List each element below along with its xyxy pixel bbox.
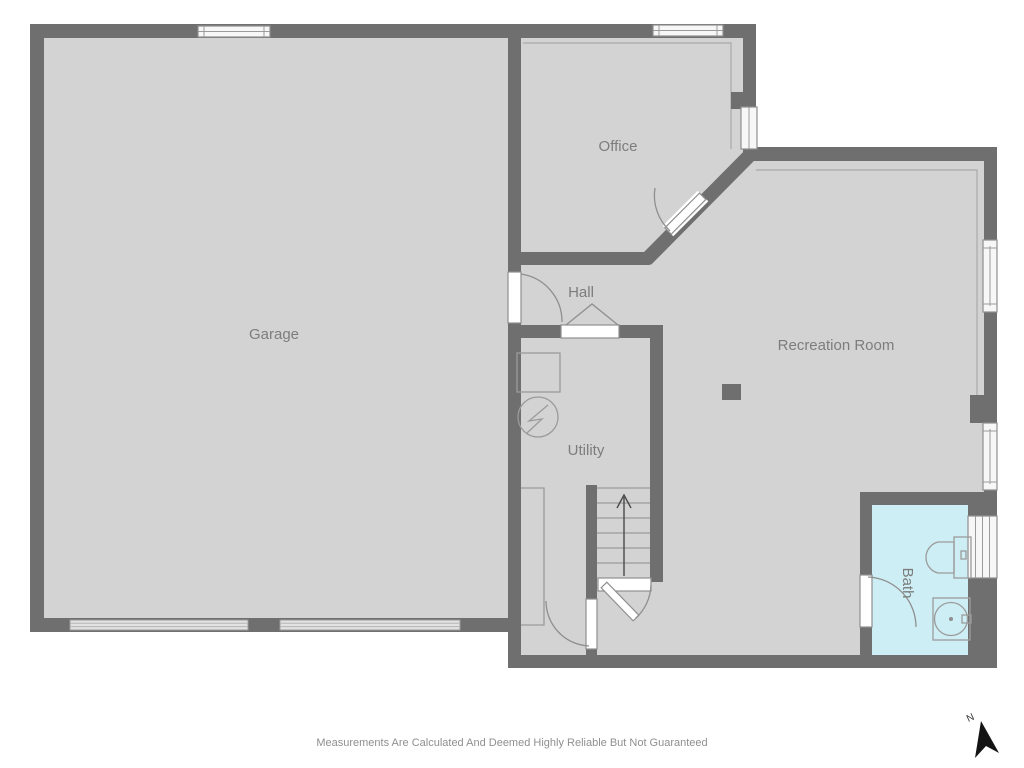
disclaimer-text: Measurements Are Calculated And Deemed H… (316, 737, 707, 749)
utility-label: Utility (568, 442, 605, 459)
office-label: Office (599, 138, 638, 155)
garage-door-left (70, 620, 248, 630)
hall-label: Hall (568, 284, 594, 301)
office-side-window (741, 107, 757, 149)
garage-label: Garage (249, 326, 299, 343)
recreation-window-upper (983, 240, 997, 312)
recreation-room-label: Recreation Room (778, 337, 895, 354)
office-top-window (653, 25, 723, 36)
floor-plan-drawing: Garage Office Hall Utility Recreation Ro… (0, 0, 1024, 768)
garage-door-right (280, 620, 460, 630)
support-column (722, 384, 741, 400)
bath-floor (872, 505, 968, 655)
north-arrow-icon: N (965, 712, 999, 758)
bath-window (968, 516, 997, 578)
floor-plan-canvas: Garage Office Hall Utility Recreation Ro… (0, 0, 1024, 768)
bath-label: Bath (899, 568, 916, 599)
recreation-window-lower (983, 423, 997, 490)
garage-window (198, 26, 270, 37)
north-label: N (965, 712, 976, 725)
